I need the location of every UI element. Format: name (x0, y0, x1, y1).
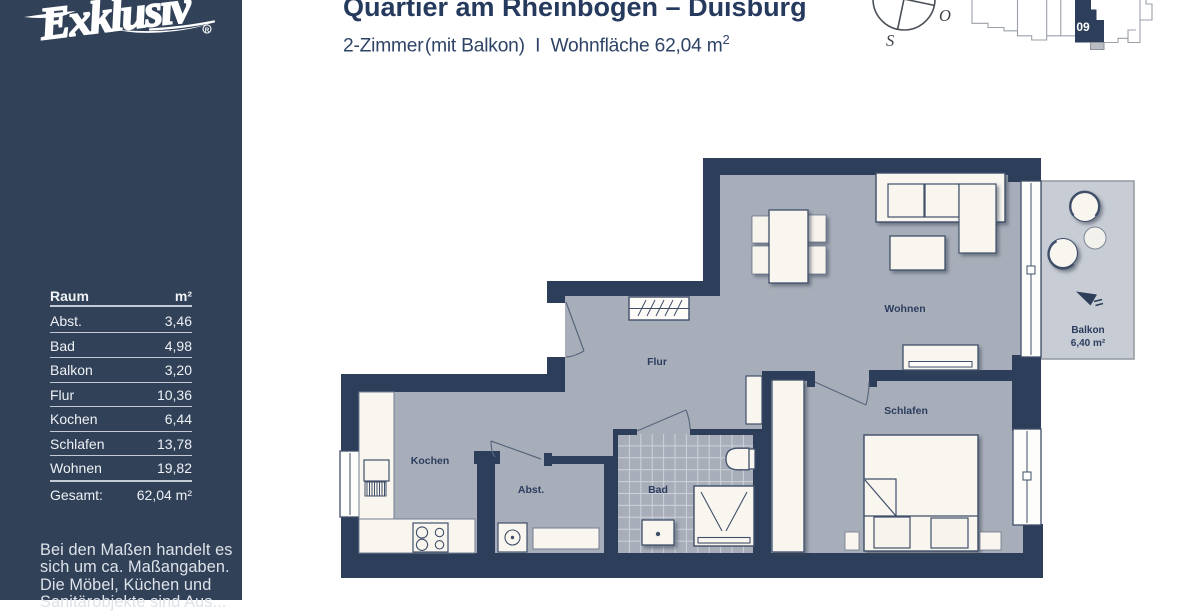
svg-text:S: S (886, 31, 894, 50)
svg-text:Kochen: Kochen (411, 455, 450, 467)
svg-text:Schlafen: Schlafen (884, 405, 928, 417)
svg-text:Flur: Flur (647, 356, 667, 368)
svg-text:6,40 m²: 6,40 m² (1071, 338, 1106, 349)
svg-text:Balkon: Balkon (1071, 325, 1104, 336)
svg-text:Abst.: Abst. (518, 484, 544, 496)
svg-text:09: 09 (1076, 20, 1090, 34)
svg-text:O: O (939, 6, 951, 25)
svg-text:Wohnen: Wohnen (884, 303, 925, 315)
svg-text:Bad: Bad (648, 484, 668, 496)
